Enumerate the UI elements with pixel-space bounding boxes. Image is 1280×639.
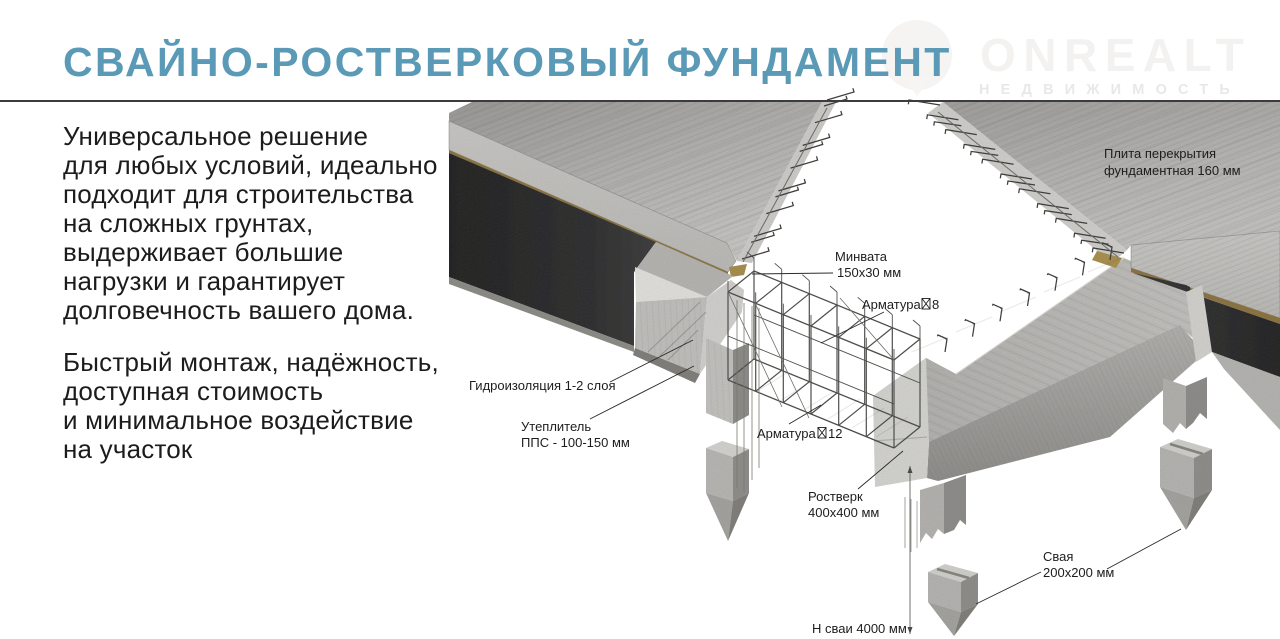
svg-text:Н сваи 4000 мм: Н сваи 4000 мм [812,621,907,636]
svg-text:Арматура: Арматура [757,426,816,441]
svg-text:Ростверк: Ростверк [808,489,863,504]
svg-text:Минвата: Минвата [835,249,888,264]
svg-text:8: 8 [932,297,939,312]
svg-text:фундаментная 160 мм: фундаментная 160 мм [1104,163,1241,178]
svg-text:150х30 мм: 150х30 мм [837,265,901,280]
svg-text:ППС - 100-150 мм: ППС - 100-150 мм [521,435,630,450]
svg-text:Гидроизоляция 1-2 слоя: Гидроизоляция 1-2 слоя [469,378,616,393]
svg-text:400х400 мм: 400х400 мм [808,505,879,520]
svg-text:Плита перекрытия: Плита перекрытия [1104,146,1216,161]
svg-text:Арматура: Арматура [862,297,921,312]
svg-text:200х200 мм: 200х200 мм [1043,565,1114,580]
svg-text:Свая: Свая [1043,549,1073,564]
svg-text:12: 12 [828,426,842,441]
svg-text:Утеплитель: Утеплитель [521,419,591,434]
